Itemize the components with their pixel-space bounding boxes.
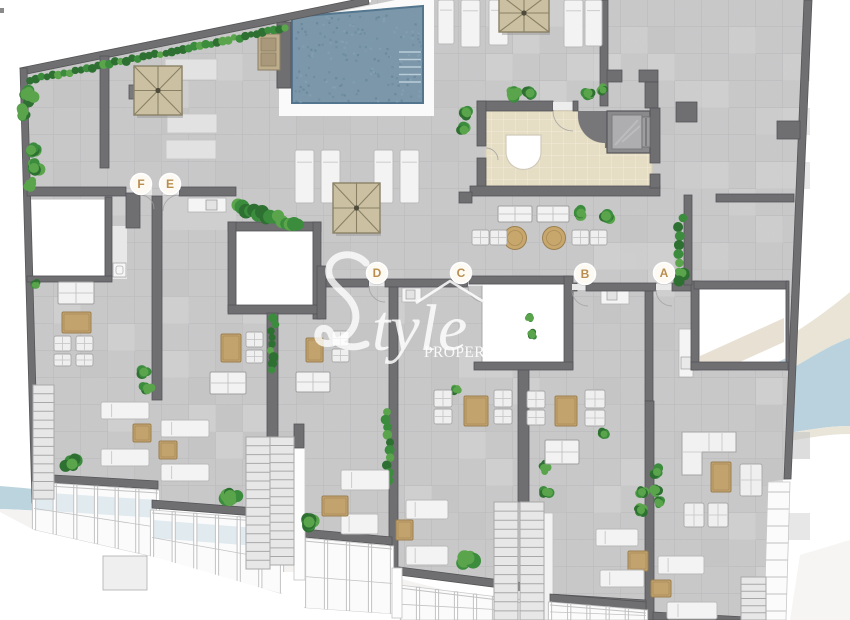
svg-text:PROPERTIES: PROPERTIES: [424, 344, 518, 361]
svg-text:F: F: [137, 177, 144, 191]
svg-text:B: B: [581, 267, 590, 281]
svg-text:E: E: [166, 177, 174, 191]
svg-text:D: D: [373, 266, 382, 280]
svg-text:A: A: [660, 266, 669, 280]
svg-text:C: C: [457, 266, 466, 280]
